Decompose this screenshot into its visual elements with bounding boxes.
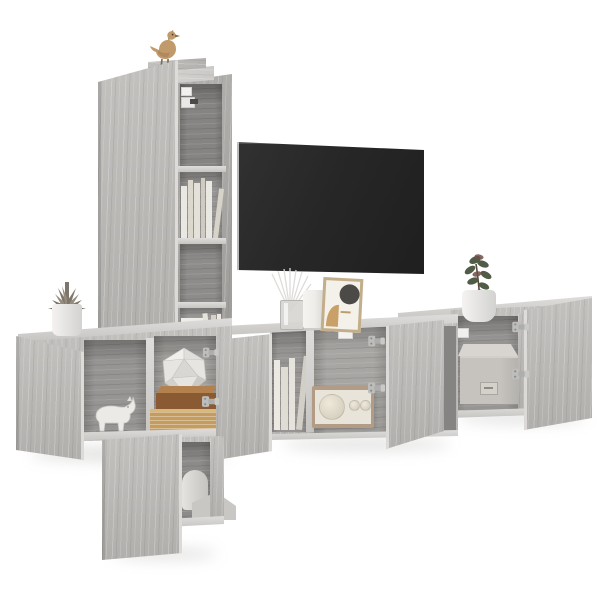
door-edge bbox=[524, 298, 527, 432]
hinge-icon bbox=[368, 380, 386, 396]
middle-cabinet-right-door bbox=[386, 320, 444, 452]
bird-figurine bbox=[144, 26, 186, 70]
rhino-figurine bbox=[86, 394, 140, 436]
right-cabinet-right-door bbox=[524, 298, 592, 432]
shadow-under-middle-cabinet bbox=[282, 438, 450, 451]
hinge-icon bbox=[202, 346, 220, 359]
hinge-icon bbox=[512, 320, 530, 334]
diffuser-jar bbox=[280, 300, 304, 330]
door-edge bbox=[179, 434, 182, 560]
frame-art bbox=[324, 280, 360, 330]
radio-knob bbox=[360, 400, 371, 411]
left-cabinet-door bbox=[16, 336, 84, 462]
wall-mount-hardware bbox=[181, 87, 192, 96]
bottom-cabinet-door bbox=[102, 434, 182, 560]
tv-bezel-top-edge bbox=[237, 142, 424, 144]
succulent-pot bbox=[52, 304, 82, 336]
product-photo-canvas bbox=[0, 0, 600, 600]
radio-speaker bbox=[319, 394, 345, 420]
door-edge bbox=[386, 320, 389, 452]
books-on-shelf bbox=[181, 176, 221, 238]
wall-mount-hardware bbox=[457, 328, 469, 338]
wall-mount-hardware bbox=[190, 99, 198, 104]
hinge-icon bbox=[512, 366, 530, 382]
picture-frame bbox=[321, 277, 364, 333]
retro-radio bbox=[312, 386, 374, 428]
tall-cabinet-door bbox=[98, 60, 178, 350]
tv bbox=[237, 142, 424, 275]
hinge-icon bbox=[202, 394, 220, 409]
box-label-holder bbox=[480, 382, 498, 395]
door-edge bbox=[269, 334, 272, 460]
radio-knob bbox=[349, 400, 360, 411]
tall-shelf-compartment-empty bbox=[180, 244, 222, 302]
hinge-icon bbox=[368, 334, 386, 348]
upright-white-books bbox=[274, 352, 305, 430]
door-edge bbox=[175, 60, 178, 350]
plant-pot bbox=[462, 290, 496, 322]
tv-bezel-left-edge bbox=[237, 142, 239, 275]
door-edge bbox=[81, 336, 84, 462]
middle-cabinet-left-door bbox=[216, 334, 272, 460]
bottom-cabinet-right-panel bbox=[210, 438, 224, 520]
